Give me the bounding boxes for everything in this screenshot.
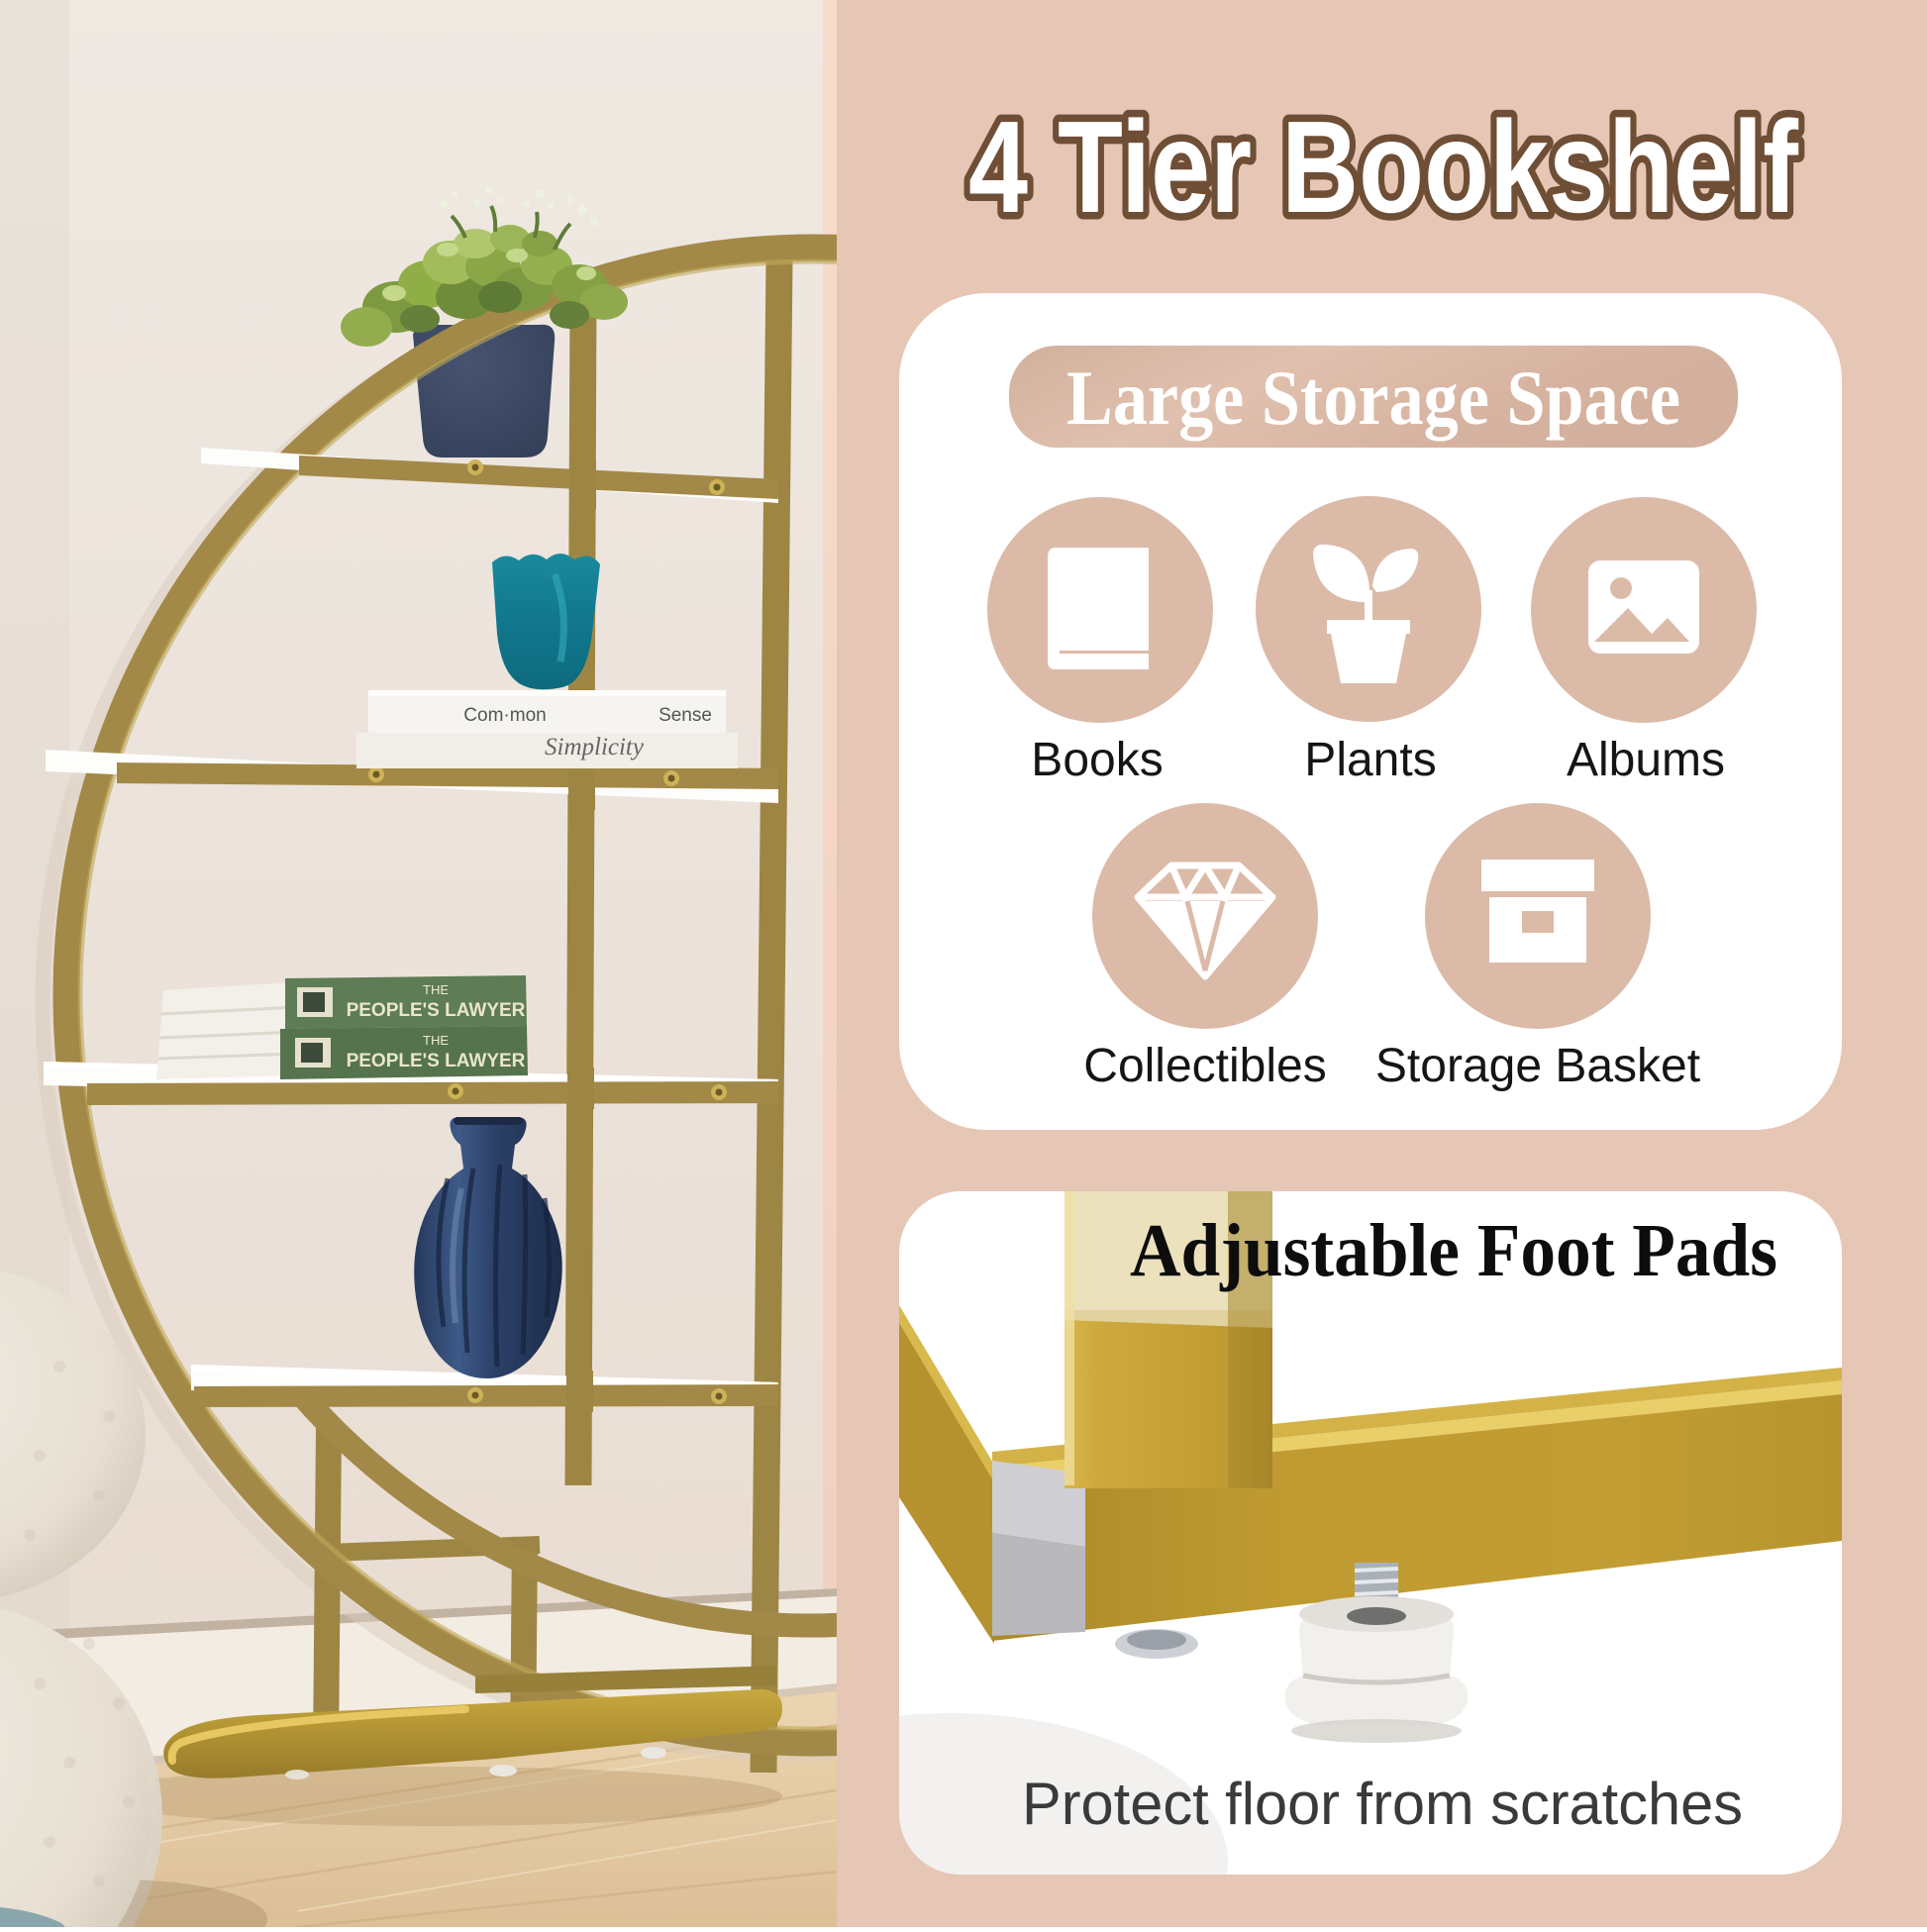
svg-text:THE: THE: [423, 982, 449, 997]
svg-text:Albums: Albums: [1567, 734, 1725, 786]
svg-text:Books: Books: [1031, 734, 1163, 786]
svg-text:4 Tier Bookshelf: 4 Tier Bookshelf: [968, 94, 1799, 240]
svg-text:Adjustable Foot Pads: Adjustable Foot Pads: [1130, 1209, 1777, 1292]
svg-text:THE: THE: [423, 1033, 449, 1048]
svg-text:Com·mon: Com·mon: [463, 705, 546, 726]
svg-text:Plants: Plants: [1304, 734, 1436, 786]
svg-text:Collectibles: Collectibles: [1083, 1040, 1326, 1092]
svg-text:Large Storage Space: Large Storage Space: [1066, 355, 1680, 441]
svg-text:Protect floor from scratches: Protect floor from scratches: [1022, 1771, 1743, 1837]
svg-text:Storage Basket: Storage Basket: [1375, 1040, 1700, 1092]
svg-text:PEOPLE'S LAWYER: PEOPLE'S LAWYER: [347, 1051, 526, 1071]
svg-text:Sense: Sense: [659, 705, 712, 726]
svg-text:PEOPLE'S LAWYER: PEOPLE'S LAWYER: [347, 1000, 526, 1021]
svg-text:Simplicity: Simplicity: [545, 734, 645, 761]
